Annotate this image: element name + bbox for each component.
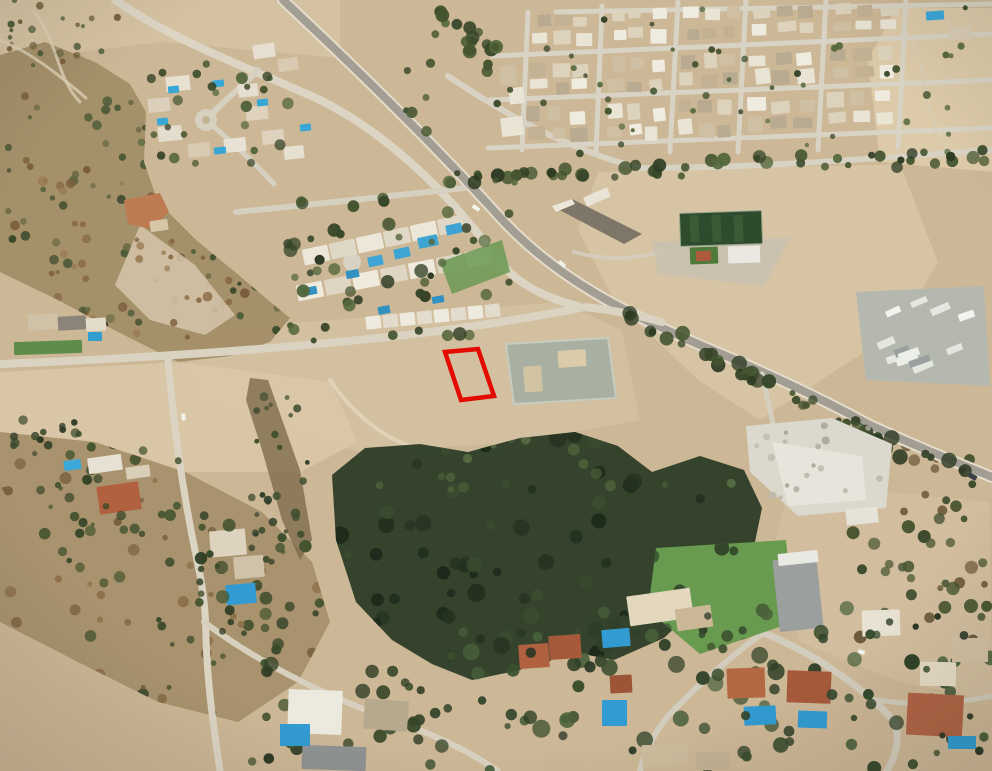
screenshot-root [0, 0, 992, 771]
photo-layer [0, 0, 992, 771]
aerial-satellite-photo [0, 0, 992, 771]
vignette [0, 0, 992, 771]
